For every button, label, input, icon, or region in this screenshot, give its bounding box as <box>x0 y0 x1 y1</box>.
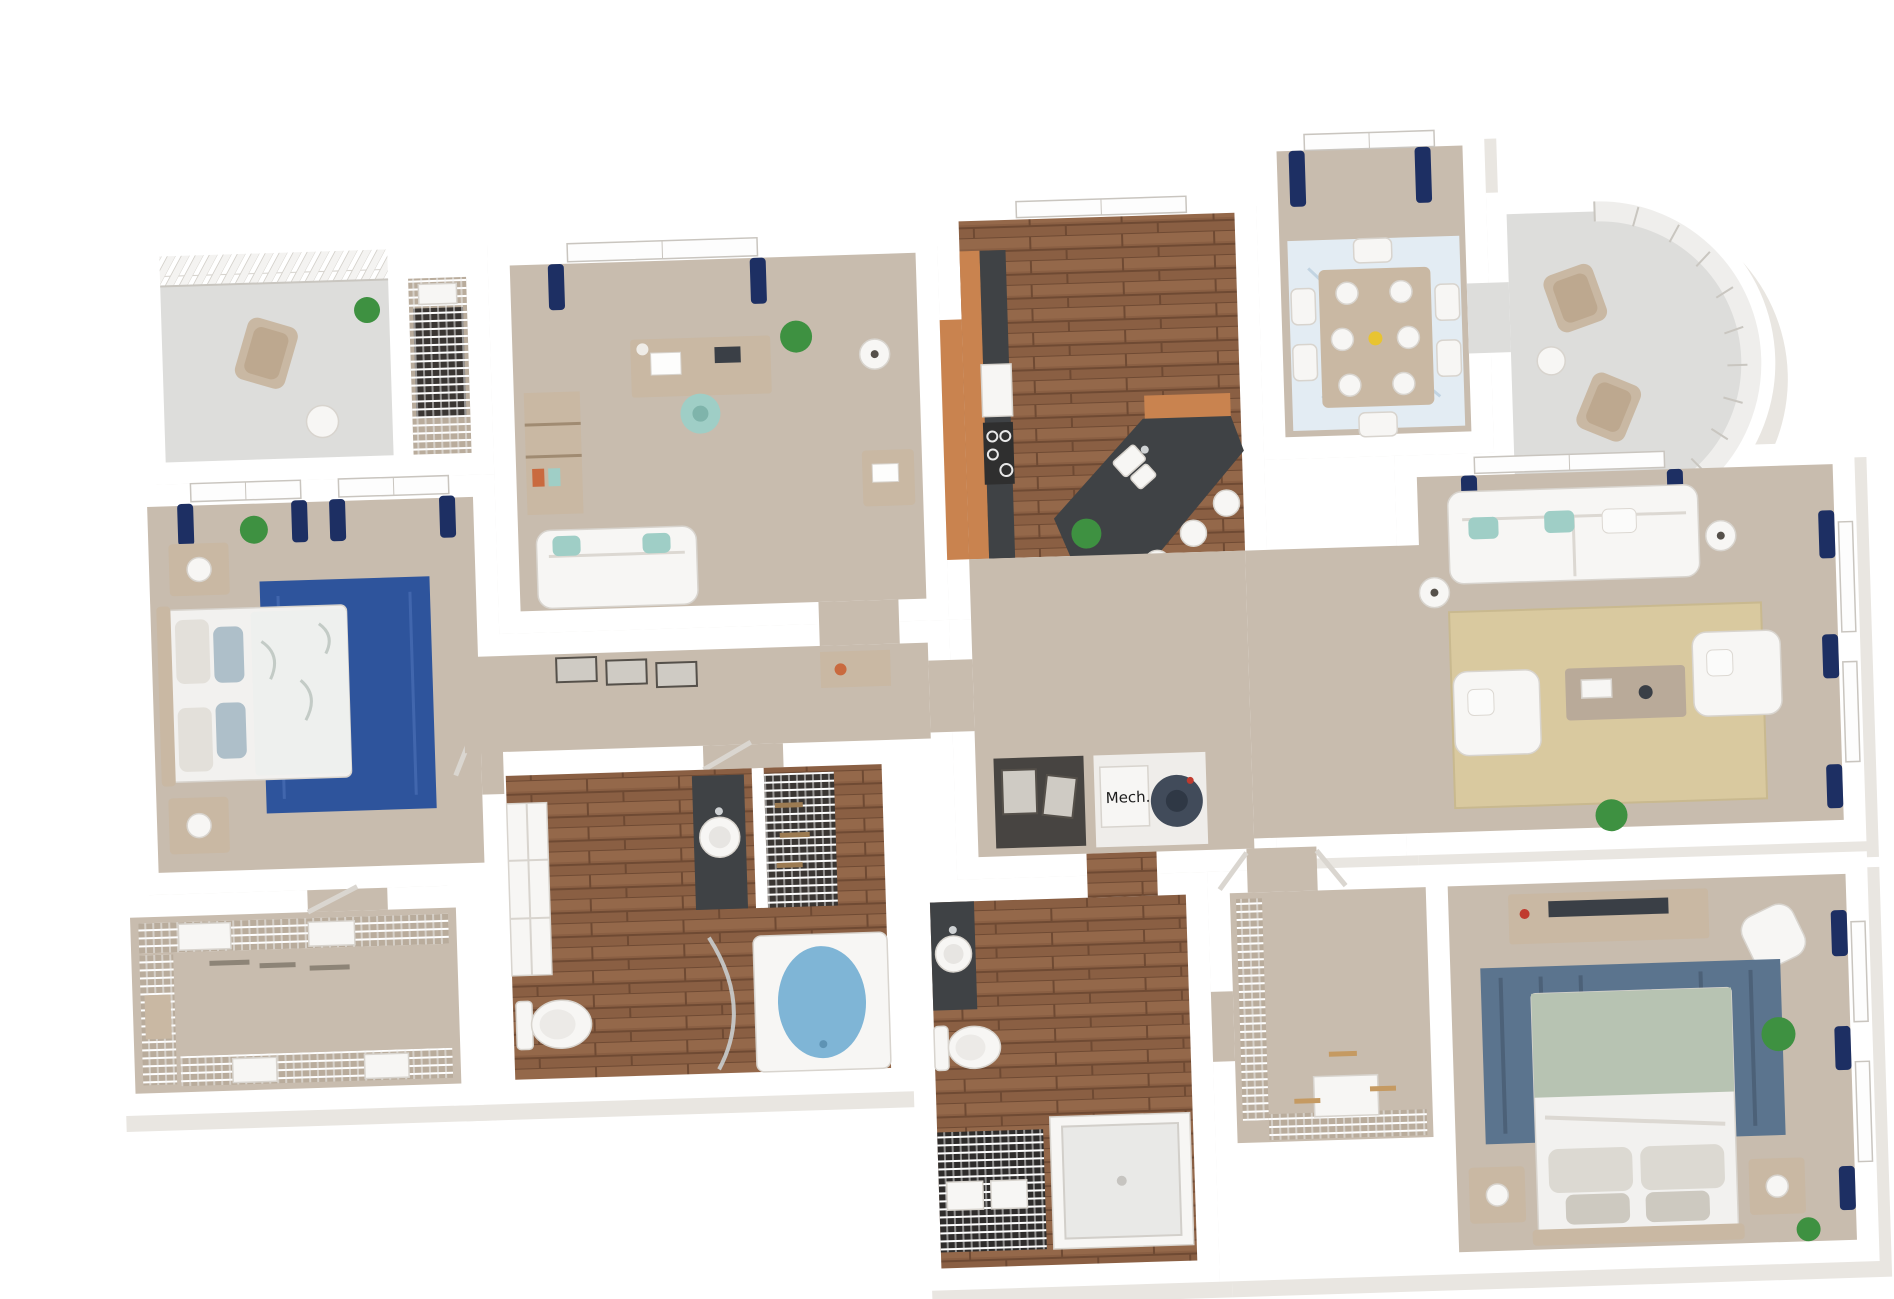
wire-shelving <box>764 772 838 908</box>
pillow-teal <box>1468 517 1499 540</box>
plate <box>1336 282 1359 305</box>
pillow <box>1640 1144 1725 1191</box>
bed-master <box>1525 987 1745 1246</box>
dining-chair <box>1293 344 1318 381</box>
notebook <box>651 352 682 375</box>
shoe-closet <box>764 772 838 908</box>
bath-2-doorway <box>1086 852 1157 898</box>
hall-to-kitchen-opening <box>928 659 974 732</box>
stored-frame <box>1002 769 1037 814</box>
curtain <box>1822 634 1839 678</box>
bar-stool <box>1213 490 1240 517</box>
storage-box <box>178 923 231 951</box>
living-window-right-1 <box>1838 521 1855 631</box>
lamp <box>187 557 212 582</box>
vanity <box>692 774 748 910</box>
toilet <box>934 1025 1001 1071</box>
curtain <box>291 500 308 542</box>
laundry-closet <box>937 1129 1047 1252</box>
pillow <box>1565 1193 1630 1225</box>
curtain <box>1288 151 1306 207</box>
bathroom-1 <box>506 764 891 1080</box>
closet-2-doorway <box>1211 991 1235 1062</box>
sofa <box>1447 484 1700 584</box>
balcony-1 <box>159 249 393 462</box>
laundry-basket <box>947 1181 984 1210</box>
curtain <box>1839 1166 1856 1210</box>
loveseat <box>536 526 698 609</box>
pillow-white <box>1602 508 1637 533</box>
plate <box>1339 374 1362 397</box>
office-doorway <box>818 600 899 646</box>
book <box>872 463 899 482</box>
lamp <box>187 813 212 838</box>
toilet <box>516 999 592 1049</box>
master-bathroom <box>930 895 1197 1269</box>
pillow-blue <box>215 702 247 759</box>
curtain <box>1831 910 1848 956</box>
bed-queen <box>156 601 352 787</box>
curtain <box>439 495 456 537</box>
vanity <box>930 901 977 1010</box>
books <box>532 469 545 487</box>
plate <box>1331 328 1354 351</box>
living-window-right-2 <box>1843 661 1860 761</box>
floor-plan-3d-rendering: Mech. <box>0 0 1894 1299</box>
pillow <box>175 619 211 684</box>
bar-stool <box>1180 520 1207 547</box>
tray <box>1581 679 1612 698</box>
closet-entry <box>408 277 471 455</box>
master-bedroom <box>1448 873 1875 1252</box>
pillow <box>177 707 213 772</box>
toilet-tank <box>934 1026 949 1070</box>
pillow-teal <box>552 535 581 556</box>
pillow <box>1645 1190 1710 1222</box>
curtain <box>177 504 194 546</box>
curtain <box>1834 1026 1851 1070</box>
dining-chair <box>1435 284 1460 321</box>
books <box>548 468 561 486</box>
pillow-white <box>1706 649 1733 676</box>
coffee-table <box>1565 665 1687 721</box>
dining-chair <box>1437 340 1462 377</box>
pillow-white <box>1468 689 1495 716</box>
lamp <box>1486 1184 1509 1207</box>
storage-box <box>364 1053 409 1078</box>
linen-closet-doors <box>507 803 552 976</box>
walk-in-closet-2 <box>1208 887 1434 1144</box>
armchair <box>1692 630 1783 717</box>
shower <box>1050 1113 1194 1249</box>
pillow <box>1548 1147 1633 1194</box>
dining-chair <box>1359 412 1398 437</box>
bedroom-2 <box>146 474 506 873</box>
kitchen <box>936 195 1248 583</box>
armchair <box>1453 669 1542 756</box>
dining-chair <box>1291 288 1316 325</box>
storage-niche <box>993 756 1086 849</box>
master-doorway <box>1246 846 1317 892</box>
living-room <box>1415 446 1862 837</box>
plate <box>1390 280 1413 303</box>
patio-table <box>1537 346 1566 375</box>
stored-frame <box>1043 775 1077 818</box>
pillow-blue <box>213 626 245 683</box>
lamp <box>1766 1175 1789 1198</box>
curtain <box>1826 764 1843 808</box>
plate <box>1393 372 1416 395</box>
curtain <box>1414 147 1432 203</box>
drawer-unit <box>1314 1075 1379 1117</box>
dresser-tv <box>1508 888 1709 944</box>
floor-plan-canvas: Mech. <box>0 0 1894 1299</box>
wall-art <box>606 659 647 684</box>
office-den <box>509 233 928 656</box>
plate <box>1397 326 1420 349</box>
patio-table <box>306 405 339 438</box>
sage-blanket <box>1531 988 1734 1098</box>
floral-duvet <box>250 609 351 776</box>
wall-art <box>556 657 597 682</box>
storage-box <box>418 283 457 304</box>
desk <box>630 335 772 397</box>
curtain <box>329 499 346 541</box>
master-window-2 <box>1855 1061 1872 1161</box>
dining-chair <box>1353 238 1392 263</box>
curtain <box>750 258 767 304</box>
bookshelf <box>524 391 584 515</box>
basket <box>144 995 171 1040</box>
garden-tub <box>753 932 891 1072</box>
console-table <box>820 650 891 688</box>
balcony-2-doorway <box>1467 282 1511 353</box>
mech-closet: Mech. <box>1093 752 1208 847</box>
storage-box <box>308 921 355 946</box>
mech-label: Mech. <box>1105 788 1150 807</box>
refrigerator <box>981 364 1013 417</box>
curtain <box>548 264 565 310</box>
stove <box>983 422 1015 485</box>
laptop <box>714 346 740 363</box>
pillow-teal <box>1544 510 1575 533</box>
pillow-teal <box>642 533 671 554</box>
curtain <box>1818 510 1835 558</box>
toilet-tank <box>516 1001 533 1049</box>
master-window-1 <box>1851 921 1868 1021</box>
laundry-basket <box>991 1180 1028 1209</box>
wall-art <box>656 662 697 687</box>
storage-box <box>232 1057 277 1082</box>
open-area-floor <box>1245 545 1430 838</box>
